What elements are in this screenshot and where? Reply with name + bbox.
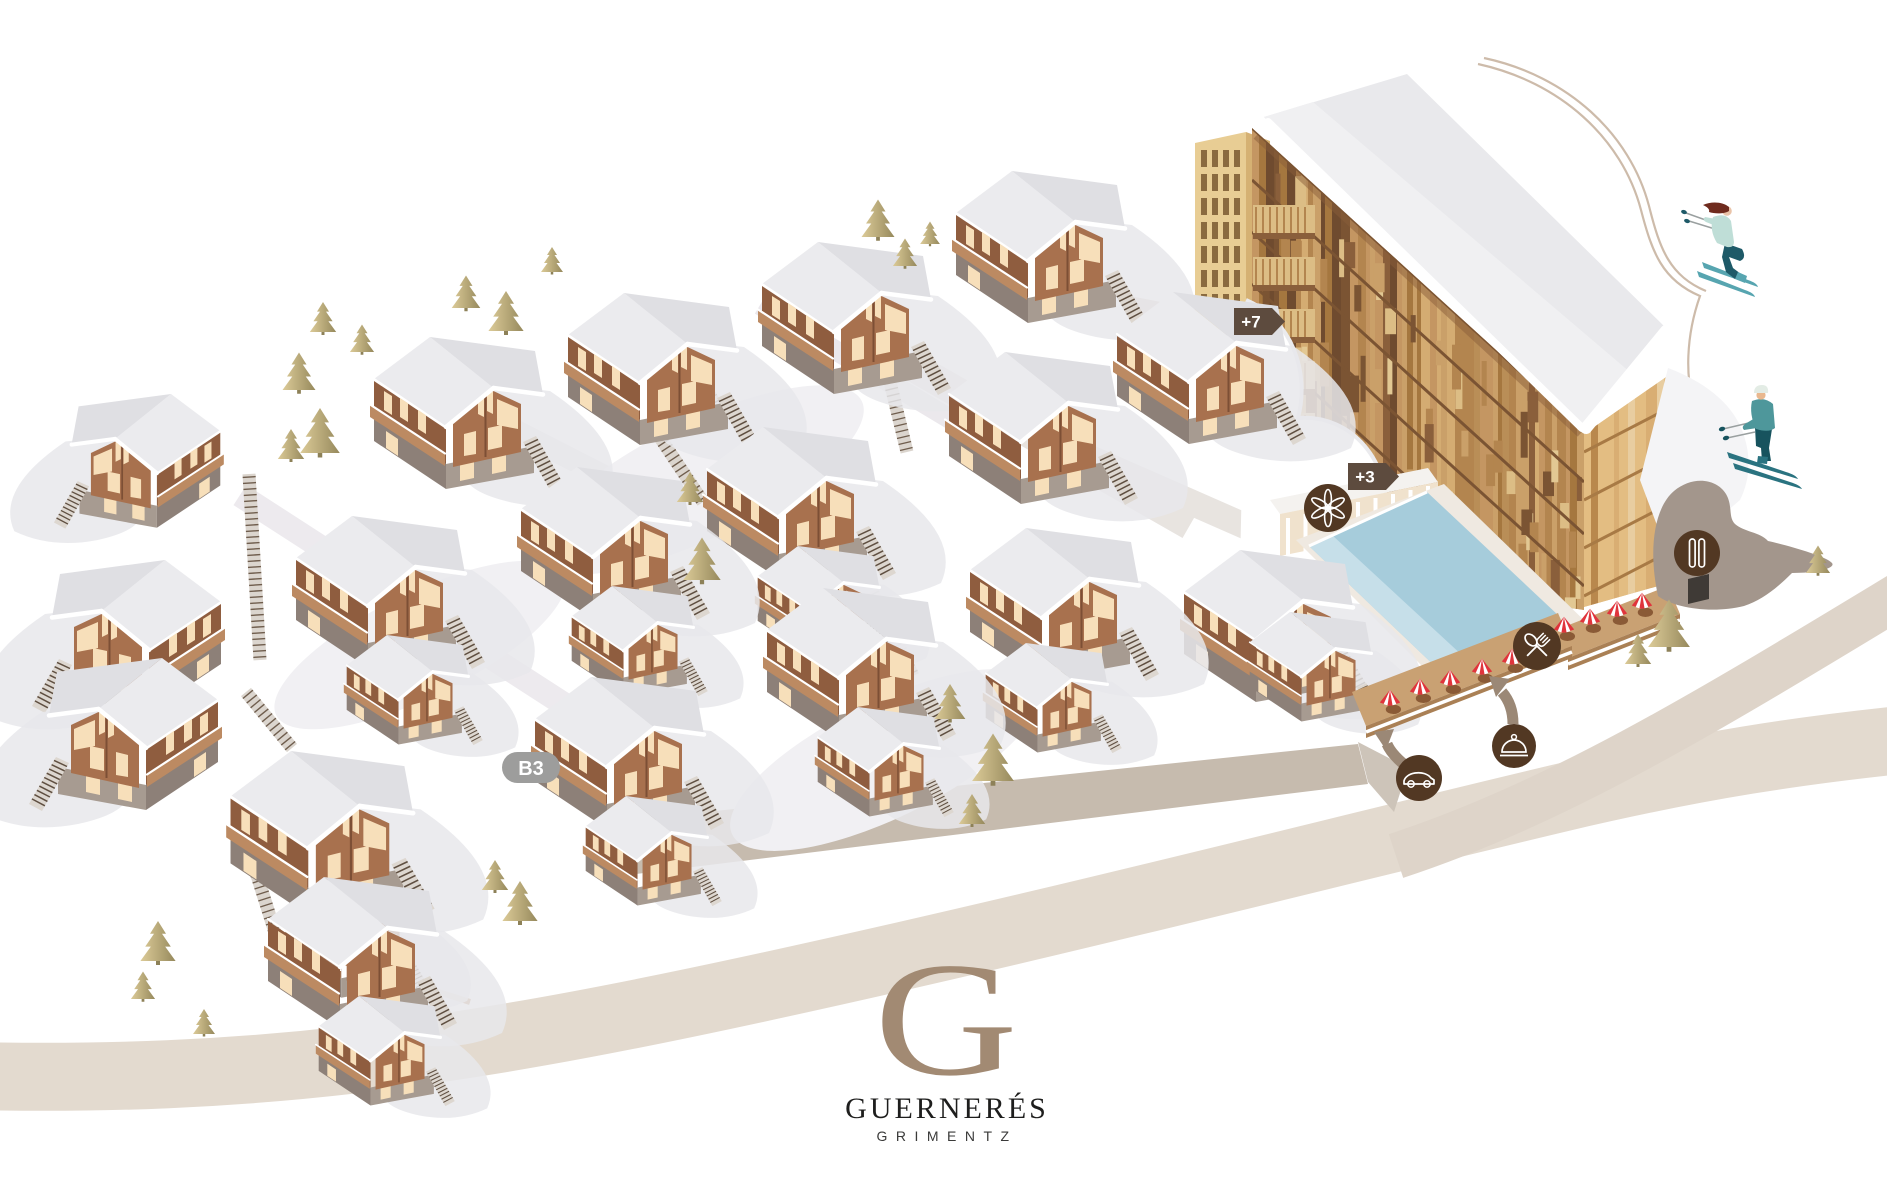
svg-text:+7: +7 <box>1241 313 1260 332</box>
svg-text:GRIMENTZ: GRIMENTZ <box>876 1128 1017 1144</box>
svg-text:B3: B3 <box>518 758 544 780</box>
svg-text:G: G <box>874 930 1018 1110</box>
svg-text:GUERNERÉS: GUERNERÉS <box>845 1092 1049 1125</box>
svg-text:+3: +3 <box>1355 468 1374 487</box>
